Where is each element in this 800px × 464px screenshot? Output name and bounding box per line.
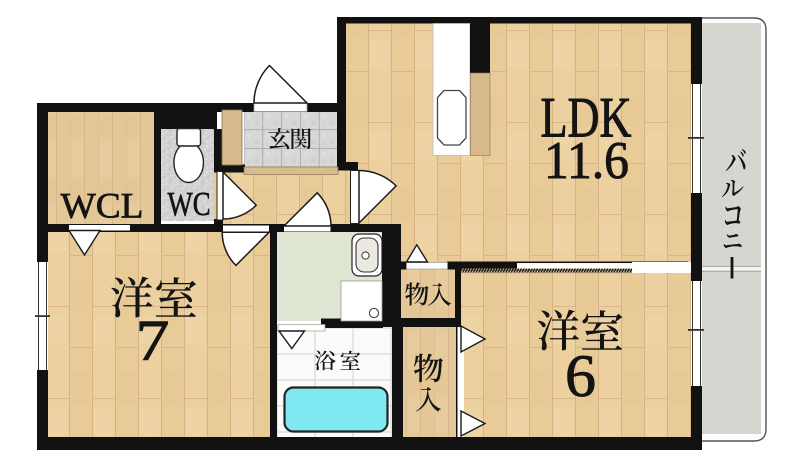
svg-text:7: 7 <box>136 308 170 373</box>
svg-text:6: 6 <box>565 343 596 409</box>
svg-text:11.6: 11.6 <box>544 132 629 190</box>
svg-text:WCL: WCL <box>61 186 144 226</box>
svg-text:WC: WC <box>168 186 211 223</box>
